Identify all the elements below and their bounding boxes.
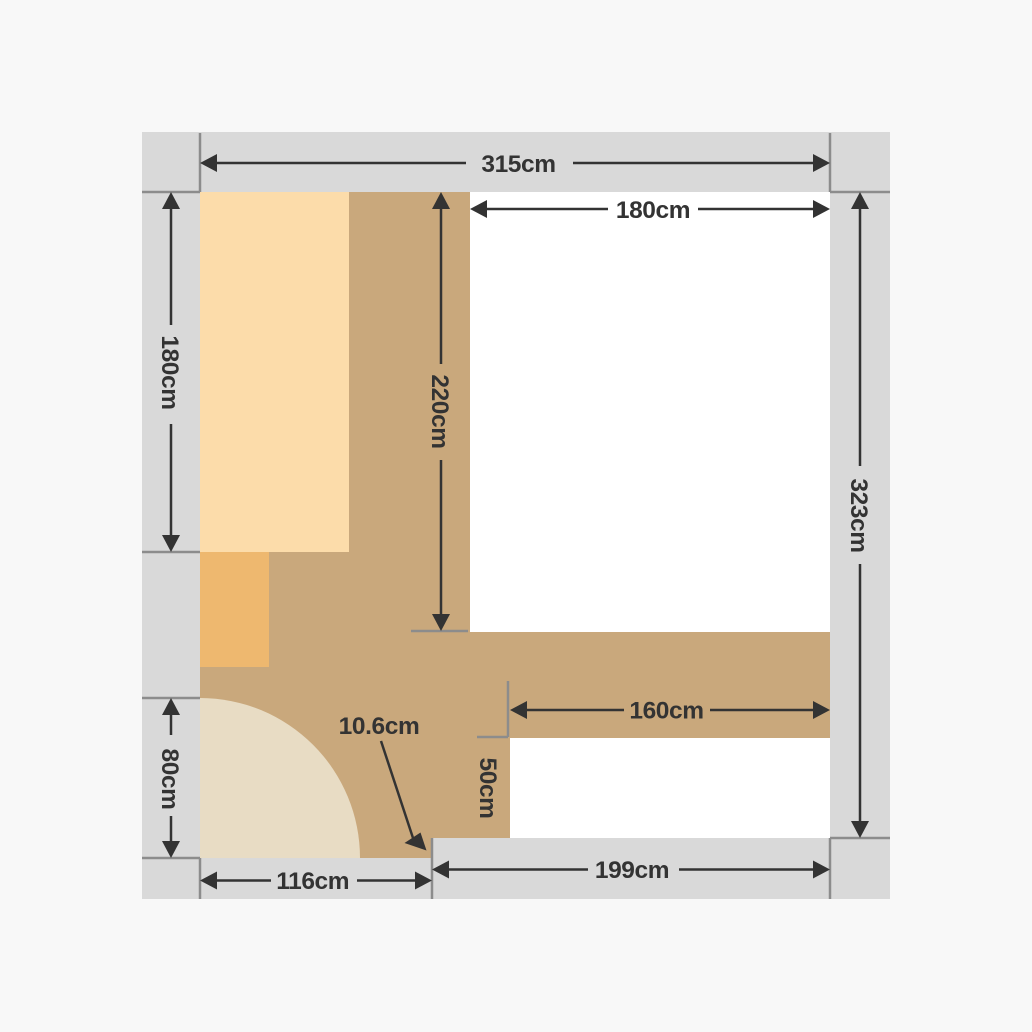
svg-text:10.6cm: 10.6cm xyxy=(339,713,420,740)
svg-text:116cm: 116cm xyxy=(276,868,349,895)
svg-text:315cm: 315cm xyxy=(481,151,555,178)
svg-text:80cm: 80cm xyxy=(156,748,183,809)
svg-text:180cm: 180cm xyxy=(156,335,183,409)
svg-text:199cm: 199cm xyxy=(595,857,669,884)
svg-text:220cm: 220cm xyxy=(426,374,453,448)
svg-text:160cm: 160cm xyxy=(629,698,703,725)
svg-text:50cm: 50cm xyxy=(474,757,501,818)
svg-text:323cm: 323cm xyxy=(845,478,872,552)
svg-text:180cm: 180cm xyxy=(616,197,690,224)
